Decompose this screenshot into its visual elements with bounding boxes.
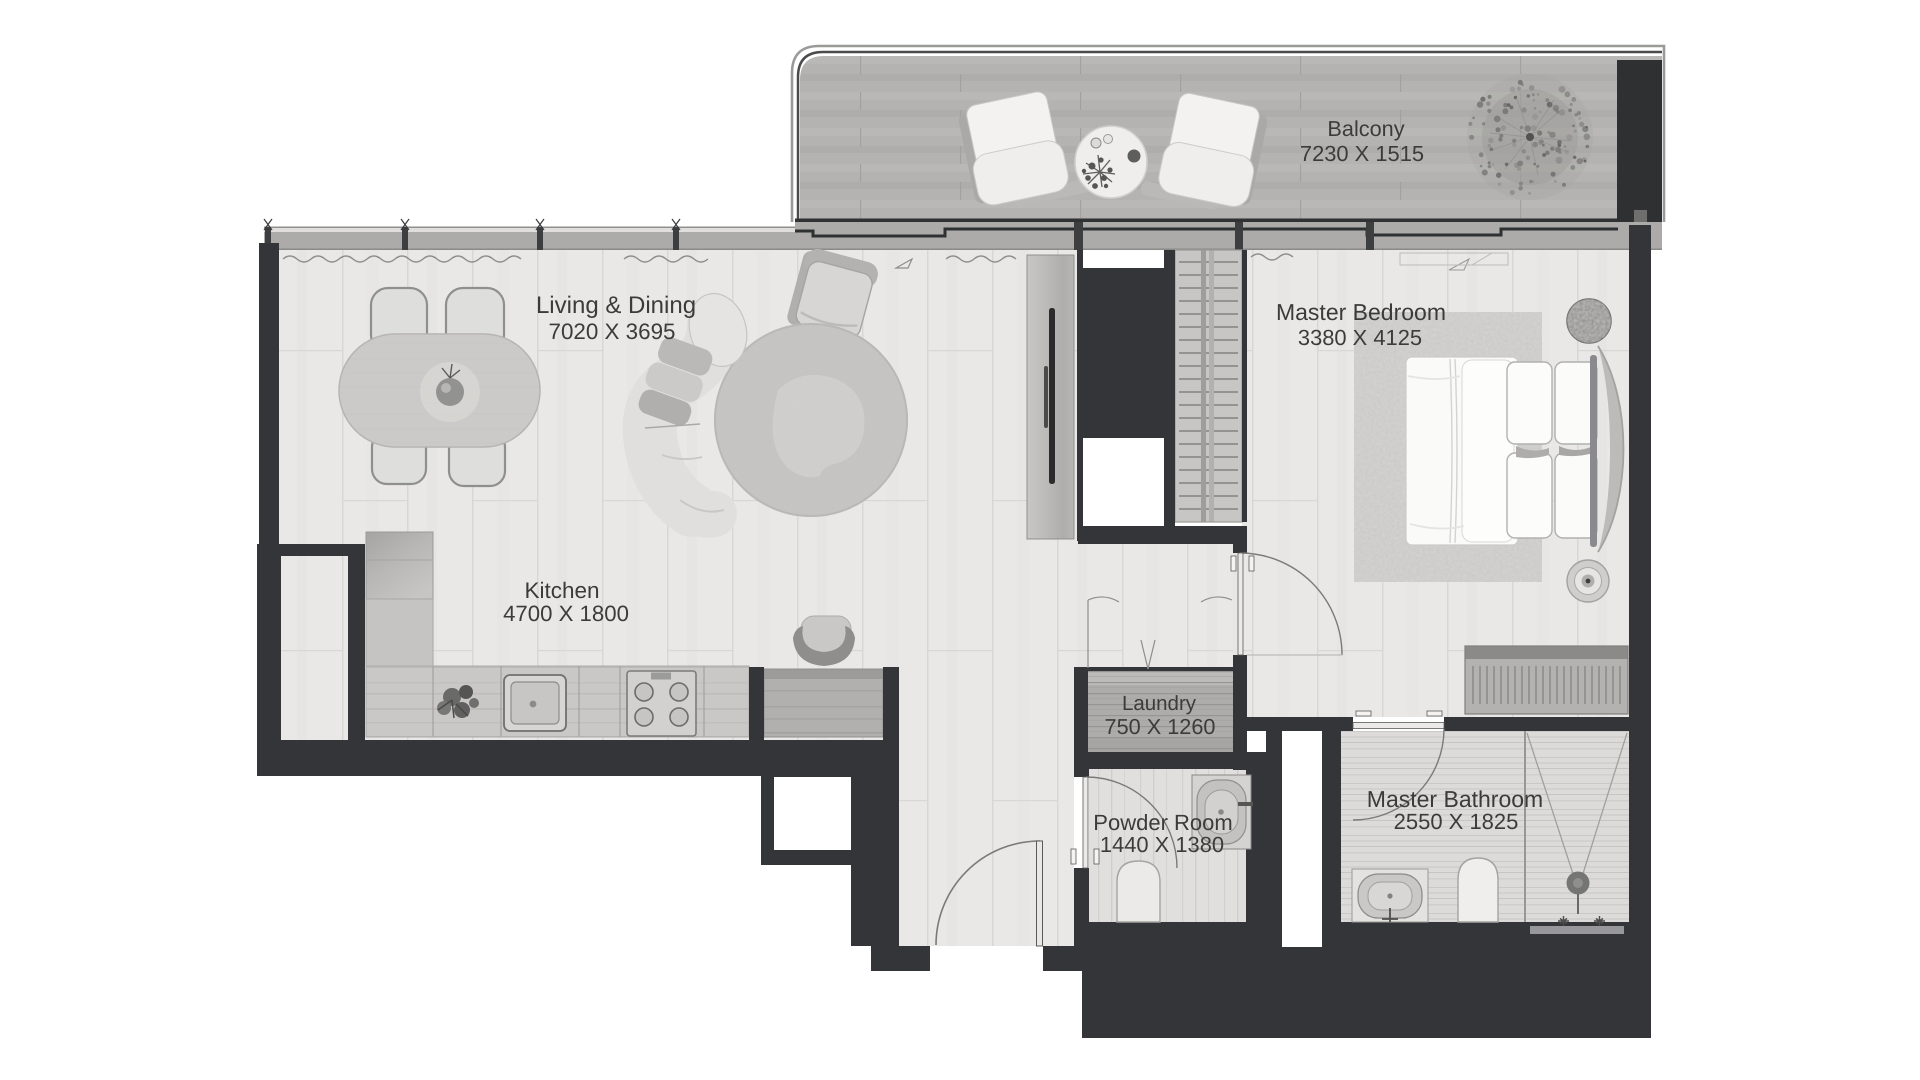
svg-text:Laundry: Laundry [1122, 692, 1197, 715]
svg-text:750 X 1260: 750 X 1260 [1105, 714, 1216, 739]
svg-text:Kitchen: Kitchen [524, 578, 599, 603]
svg-text:Living & Dining: Living & Dining [536, 292, 696, 319]
svg-text:7230 X 1515: 7230 X 1515 [1300, 141, 1424, 166]
svg-text:3380 X 4125: 3380 X 4125 [1298, 325, 1422, 350]
svg-text:1440 X 1380: 1440 X 1380 [1100, 832, 1224, 857]
svg-text:Master Bedroom: Master Bedroom [1276, 299, 1446, 325]
svg-text:4700 X 1800: 4700 X 1800 [503, 601, 629, 626]
svg-text:2550 X 1825: 2550 X 1825 [1394, 809, 1519, 834]
svg-text:Balcony: Balcony [1327, 116, 1404, 141]
svg-text:7020 X 3695: 7020 X 3695 [549, 319, 676, 344]
